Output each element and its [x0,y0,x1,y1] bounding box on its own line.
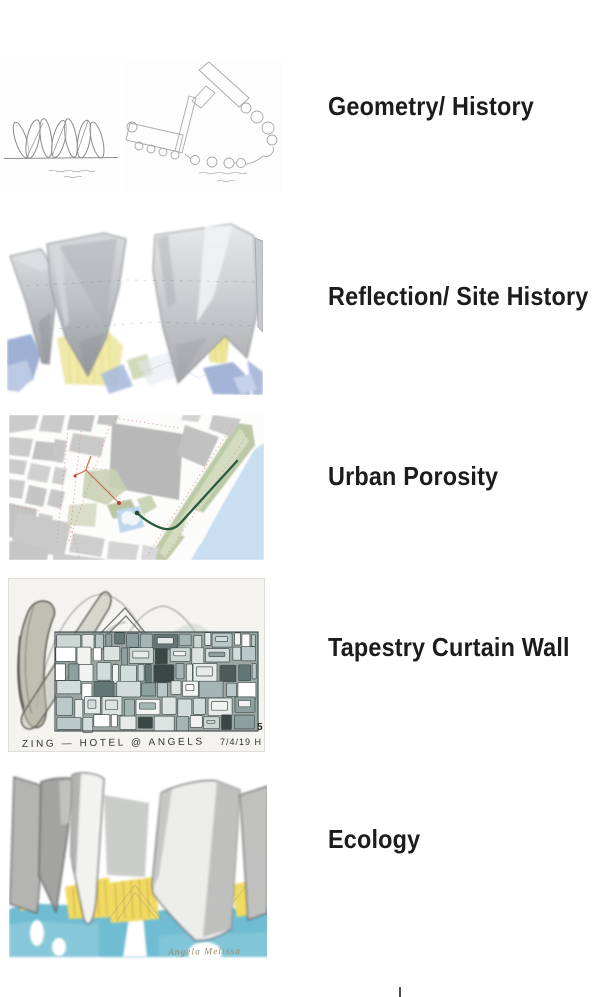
svg-text:7/4/19 H: 7/4/19 H [220,737,262,747]
svg-text:5: 5 [257,722,263,733]
svg-text:Angela Melissa: Angela Melissa [167,947,241,958]
